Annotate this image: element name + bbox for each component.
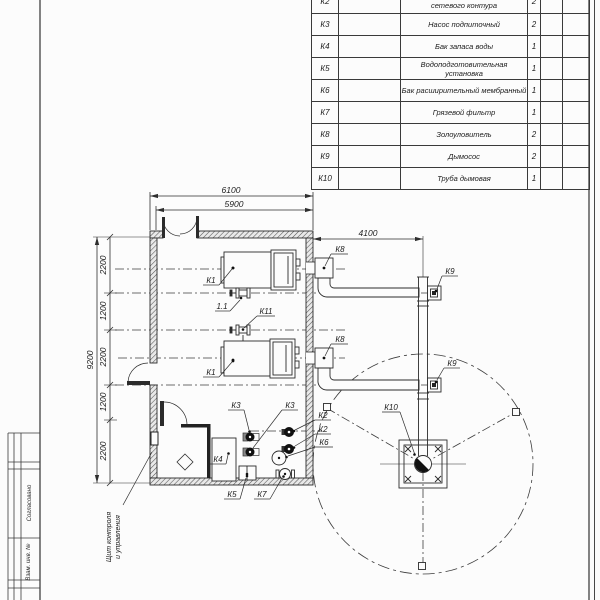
valve-1-1 (230, 288, 250, 298)
spec-pos: К7 (312, 102, 339, 124)
label-boiler-2: К1 (206, 368, 215, 377)
spec-empty (541, 14, 563, 36)
spec-qty: 2 (528, 146, 541, 168)
spec-name: сетевого контура (401, 0, 528, 14)
spec-designation (339, 58, 401, 80)
spec-name: Бак расширительный мембранный (401, 80, 528, 102)
spec-designation (339, 0, 401, 14)
label-water-tank: К4 (213, 455, 223, 464)
dim-chain-3: 2200 (98, 347, 108, 367)
spec-name: Бак запаса воды (401, 36, 528, 58)
guy-wire-anchors (324, 404, 520, 570)
flue-duct-1 (318, 278, 419, 297)
spec-designation (339, 80, 401, 102)
spec-qty: 1 (528, 36, 541, 58)
dim-top-overall: 6100 (222, 185, 241, 195)
ash-collector-k8-1 (315, 258, 333, 278)
side-exit-door (127, 363, 150, 385)
titleblock-approved-label: Согласовано (27, 484, 33, 521)
network-pump-k2-1 (282, 427, 295, 437)
spec-empty (563, 168, 590, 190)
spec-pos: К3 (312, 14, 339, 36)
spec-empty (563, 146, 590, 168)
spec-pos: К5 (312, 58, 339, 80)
spec-empty (563, 58, 590, 80)
spec-empty (541, 58, 563, 80)
spec-row-k7: К7 Грязевой фильтр 1 (312, 102, 590, 124)
spec-pos: К6 (312, 80, 339, 102)
spec-row-k3: К3 Насос подпиточный 2 (312, 14, 590, 36)
dim-left-overall: 9200 (85, 350, 95, 369)
spec-pos: К8 (312, 124, 339, 146)
label-ash-collector-1: К8 (335, 245, 345, 254)
spec-qty: 1 (528, 102, 541, 124)
label-boiler-1: К1 (206, 276, 215, 285)
centerlines (115, 269, 533, 574)
control-panel-box (151, 432, 158, 445)
spec-qty: 1 (528, 168, 541, 190)
dim-chain-2: 1200 (98, 301, 108, 320)
spec-designation (339, 124, 401, 146)
spec-name: Труба дымовая (401, 168, 528, 190)
spec-empty (541, 168, 563, 190)
spec-designation (339, 168, 401, 190)
title-block-strip (8, 433, 40, 600)
smoke-exhauster-k9-1 (428, 286, 442, 300)
spec-designation (339, 102, 401, 124)
spec-pos: К4 (312, 36, 339, 58)
spec-empty (541, 36, 563, 58)
dim-chain-4: 1200 (98, 392, 108, 411)
spec-empty (541, 102, 563, 124)
spec-name: Насос подпиточный (401, 14, 528, 36)
spec-qty: 1 (528, 58, 541, 80)
spec-row-k8: К8 Золоуловитель 2 (312, 124, 590, 146)
label-valve-k11: К11 (259, 307, 272, 316)
spec-empty (541, 146, 563, 168)
spec-pos: К9 (312, 146, 339, 168)
valve-k11 (230, 325, 250, 341)
equipment-spec-table: К2 сетевого контура 2 К3 Насос подпиточн… (311, 0, 590, 190)
label-smoke-exhauster-2: К9 (447, 359, 457, 368)
label-smoke-exhauster-1: К9 (445, 267, 455, 276)
feed-pump-k3-1 (243, 433, 259, 442)
ash-collector-k8-2 (315, 348, 333, 368)
boiler-k1-2 (221, 339, 299, 378)
spec-designation (339, 14, 401, 36)
label-chimney: К10 (384, 403, 398, 412)
spec-empty (563, 102, 590, 124)
control-room-door (160, 401, 187, 426)
spec-name: Водоподготовительная установка (401, 58, 528, 80)
spec-empty (541, 0, 563, 14)
spec-qty: 2 (528, 124, 541, 146)
label-network-pump-2: К2 (318, 425, 328, 434)
spec-row-k5: К5 Водоподготовительная установка 1 (312, 58, 590, 80)
dim-chain-5: 2200 (98, 441, 108, 461)
mud-filter-k7 (276, 469, 295, 480)
spec-pos: К2 (312, 0, 339, 14)
spec-empty (563, 124, 590, 146)
spec-empty (541, 80, 563, 102)
spec-name: Грязевой фильтр (401, 102, 528, 124)
titleblock-vzam-label: Взам. инв. № (25, 543, 32, 581)
spec-pos: К10 (312, 168, 339, 190)
spec-empty (563, 36, 590, 58)
dim-top-inner: 5900 (225, 199, 244, 209)
label-feed-pump-1: К3 (231, 401, 241, 410)
spec-empty (541, 124, 563, 146)
entrance-double-door (162, 216, 199, 238)
label-network-pump-1: К2 (318, 411, 328, 420)
label-mud-filter: К7 (257, 490, 267, 499)
boiler-k1-1 (221, 250, 300, 290)
spec-empty (563, 14, 590, 36)
note-control-panel-line2: и управления (115, 515, 122, 559)
label-ash-collector-2: К8 (335, 335, 345, 344)
spec-row-k6: К6 Бак расширительный мембранный 1 (312, 80, 590, 102)
spec-name: Золоуловитель (401, 124, 528, 146)
label-expansion-tank: К6 (319, 438, 329, 447)
spec-name: Дымосос (401, 146, 528, 168)
spec-designation (339, 146, 401, 168)
spec-empty (563, 0, 590, 14)
spec-qty: 1 (528, 80, 541, 102)
spec-qty: 2 (528, 14, 541, 36)
spec-row-k2: К2 сетевого контура 2 (312, 0, 590, 14)
spec-row-k4: К4 Бак запаса воды 1 (312, 36, 590, 58)
drawing-sheet: Согласовано Взам. инв. № (0, 0, 600, 600)
spec-row-k10: К10 Труба дымовая 1 (312, 168, 590, 190)
dim-right-offset: 4100 (359, 228, 378, 238)
spec-empty (563, 80, 590, 102)
water-treatment-k5 (239, 466, 256, 480)
smoke-exhauster-k9-2 (428, 378, 442, 392)
note-control-panel-line1: Щит контроля (106, 512, 113, 563)
spec-row-k9: К9 Дымосос 2 (312, 146, 590, 168)
expansion-tank-k6 (272, 451, 286, 465)
flue-duct-2 (318, 368, 419, 390)
spec-qty: 2 (528, 0, 541, 14)
floor-drain-diamond (177, 454, 193, 470)
dim-chain-1: 2200 (98, 255, 108, 275)
spec-designation (339, 36, 401, 58)
chimney-stack-pipe (417, 277, 429, 456)
label-pipeline-1-1: 1.1 (216, 302, 227, 311)
label-water-treatment: К5 (227, 490, 237, 499)
label-feed-pump-2: К3 (285, 401, 295, 410)
